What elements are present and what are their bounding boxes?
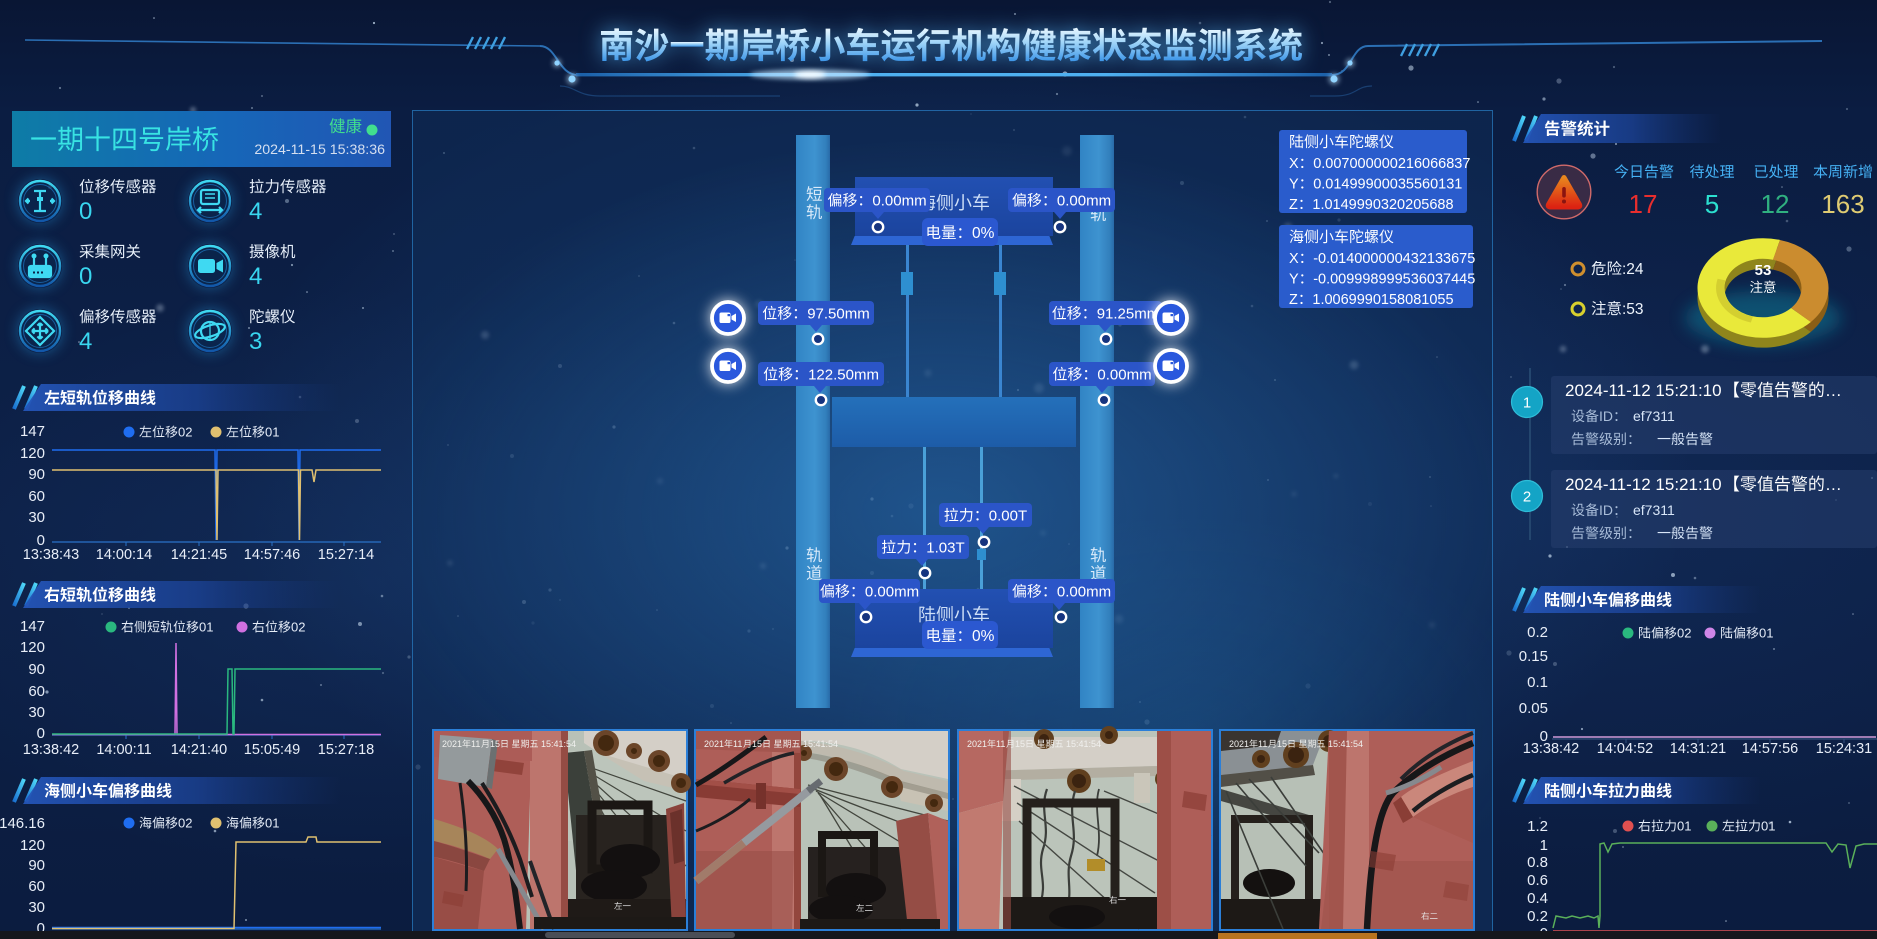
- svg-text:15: 15: [490, 739, 500, 749]
- svg-text:15:41:54: 15:41:54: [1326, 739, 1364, 749]
- svg-text:14:21:45: 14:21:45: [171, 547, 227, 563]
- svg-text:0.00mm: 0.00mm: [1057, 584, 1111, 601]
- svg-text:97.50mm: 97.50mm: [807, 306, 870, 323]
- svg-text:-0.014000000432133675: -0.014000000432133675: [1313, 251, 1475, 267]
- svg-text:1: 1: [1540, 837, 1548, 854]
- svg-text:90: 90: [28, 857, 45, 874]
- svg-text:2021: 2021: [967, 739, 987, 749]
- svg-text:1.0069990158081055: 1.0069990158081055: [1312, 292, 1453, 308]
- svg-text:ef7311: ef7311: [1633, 502, 1675, 518]
- svg-text:…: …: [1825, 381, 1842, 400]
- svg-text:30: 30: [28, 509, 45, 526]
- svg-text:14:31:21: 14:31:21: [1670, 741, 1726, 757]
- svg-text:…: …: [1825, 475, 1842, 494]
- svg-text:11: 11: [1258, 739, 1267, 749]
- svg-text:02: 02: [178, 425, 192, 440]
- svg-text:02: 02: [178, 816, 192, 831]
- svg-text:15:41:54: 15:41:54: [1064, 739, 1102, 749]
- svg-text:01: 01: [199, 620, 213, 635]
- svg-text:0.2: 0.2: [1527, 624, 1548, 641]
- svg-text:13:38:42: 13:38:42: [23, 742, 79, 758]
- svg-text:1: 1: [1523, 395, 1531, 412]
- svg-text:01: 01: [265, 425, 279, 440]
- svg-text:1.03T: 1.03T: [926, 540, 964, 557]
- svg-text:147: 147: [20, 618, 45, 635]
- svg-text:0.00mm: 0.00mm: [865, 584, 919, 601]
- svg-text:01: 01: [265, 816, 279, 831]
- svg-text:60: 60: [28, 683, 45, 700]
- svg-text:ID: ID: [1599, 408, 1613, 424]
- svg-text:15:27:18: 15:27:18: [318, 742, 374, 758]
- svg-text:2021: 2021: [1229, 739, 1249, 749]
- svg-text:0.00mm: 0.00mm: [1057, 193, 1111, 210]
- svg-text:ef7311: ef7311: [1633, 408, 1675, 424]
- svg-text:15:24:31: 15:24:31: [1816, 741, 1872, 757]
- svg-text:2021: 2021: [442, 739, 462, 749]
- svg-text:30: 30: [28, 704, 45, 721]
- svg-text:02: 02: [291, 620, 305, 635]
- svg-text:2021: 2021: [704, 739, 724, 749]
- svg-text:11: 11: [471, 739, 480, 749]
- svg-text:0.1: 0.1: [1527, 674, 1548, 691]
- svg-text:0.007000000216066837: 0.007000000216066837: [1313, 156, 1470, 172]
- svg-text:15: 15: [752, 739, 762, 749]
- svg-text:X: X: [1289, 156, 1299, 172]
- svg-text:147: 147: [20, 423, 45, 440]
- svg-text:120: 120: [20, 445, 45, 462]
- svg-text:01: 01: [1761, 819, 1775, 834]
- svg-text:02: 02: [1677, 626, 1691, 641]
- svg-text:14:00:11: 14:00:11: [96, 742, 151, 758]
- svg-text:ID: ID: [1599, 502, 1613, 518]
- svg-text:60: 60: [28, 878, 45, 895]
- svg-text:0.4: 0.4: [1527, 890, 1548, 907]
- svg-text:0: 0: [37, 725, 45, 742]
- svg-text:90: 90: [28, 661, 45, 678]
- svg-text:01: 01: [1759, 626, 1773, 641]
- svg-text:Y: Y: [1289, 272, 1299, 288]
- svg-text:11: 11: [733, 739, 742, 749]
- svg-text:0.00mm: 0.00mm: [1097, 367, 1151, 384]
- svg-text:15:41:54: 15:41:54: [539, 739, 577, 749]
- svg-text:15: 15: [1277, 739, 1287, 749]
- svg-text:13:38:42: 13:38:42: [1523, 741, 1579, 757]
- svg-text:0%: 0%: [972, 225, 995, 242]
- svg-text:0.2: 0.2: [1527, 908, 1548, 925]
- svg-text:14:57:46: 14:57:46: [244, 547, 300, 563]
- svg-text:11: 11: [996, 739, 1005, 749]
- svg-text:0.15: 0.15: [1519, 648, 1548, 665]
- svg-text:0.00T: 0.00T: [989, 508, 1027, 525]
- svg-text:90: 90: [28, 466, 45, 483]
- svg-text::53: :53: [1622, 301, 1644, 318]
- svg-text:15:27:14: 15:27:14: [318, 547, 374, 563]
- svg-text:-0.009998999536037445: -0.009998999536037445: [1313, 272, 1475, 288]
- svg-text:0.6: 0.6: [1527, 872, 1548, 889]
- svg-text:2: 2: [1523, 489, 1531, 506]
- svg-text:2024-11-15 15:38:36: 2024-11-15 15:38:36: [254, 142, 385, 158]
- svg-text:0.00mm: 0.00mm: [872, 193, 926, 210]
- svg-text:1.2: 1.2: [1527, 818, 1548, 835]
- svg-text:14:04:52: 14:04:52: [1597, 741, 1653, 757]
- svg-text:0.05: 0.05: [1519, 700, 1548, 717]
- svg-text:15:05:49: 15:05:49: [244, 742, 300, 758]
- svg-text:15: 15: [1015, 739, 1025, 749]
- svg-text:120: 120: [20, 837, 45, 854]
- svg-text:14:00:14: 14:00:14: [96, 547, 152, 563]
- svg-text:146.16: 146.16: [0, 815, 45, 832]
- svg-text:120: 120: [20, 639, 45, 656]
- svg-text:X: X: [1289, 251, 1299, 267]
- svg-text:Y: Y: [1289, 177, 1299, 193]
- svg-text:30: 30: [28, 899, 45, 916]
- svg-text:15:41:54: 15:41:54: [801, 739, 839, 749]
- svg-text:2024-11-12 15:21:10: 2024-11-12 15:21:10: [1565, 381, 1722, 400]
- svg-text:60: 60: [28, 488, 45, 505]
- svg-text::24: :24: [1622, 261, 1644, 278]
- svg-text:122.50mm: 122.50mm: [808, 367, 879, 384]
- svg-text:14:21:40: 14:21:40: [171, 742, 227, 758]
- svg-text:0%: 0%: [972, 628, 995, 645]
- svg-text:0.8: 0.8: [1527, 854, 1548, 871]
- svg-text:14:57:56: 14:57:56: [1742, 741, 1798, 757]
- svg-text:2024-11-12 15:21:10: 2024-11-12 15:21:10: [1565, 475, 1722, 494]
- svg-text:0.01499900035560131: 0.01499900035560131: [1313, 177, 1462, 193]
- svg-text:Z: Z: [1289, 292, 1298, 308]
- svg-text:1.0149990320205688: 1.0149990320205688: [1312, 197, 1453, 213]
- svg-text:Z: Z: [1289, 197, 1298, 213]
- svg-text:01: 01: [1677, 819, 1691, 834]
- svg-text:13:38:43: 13:38:43: [23, 547, 79, 563]
